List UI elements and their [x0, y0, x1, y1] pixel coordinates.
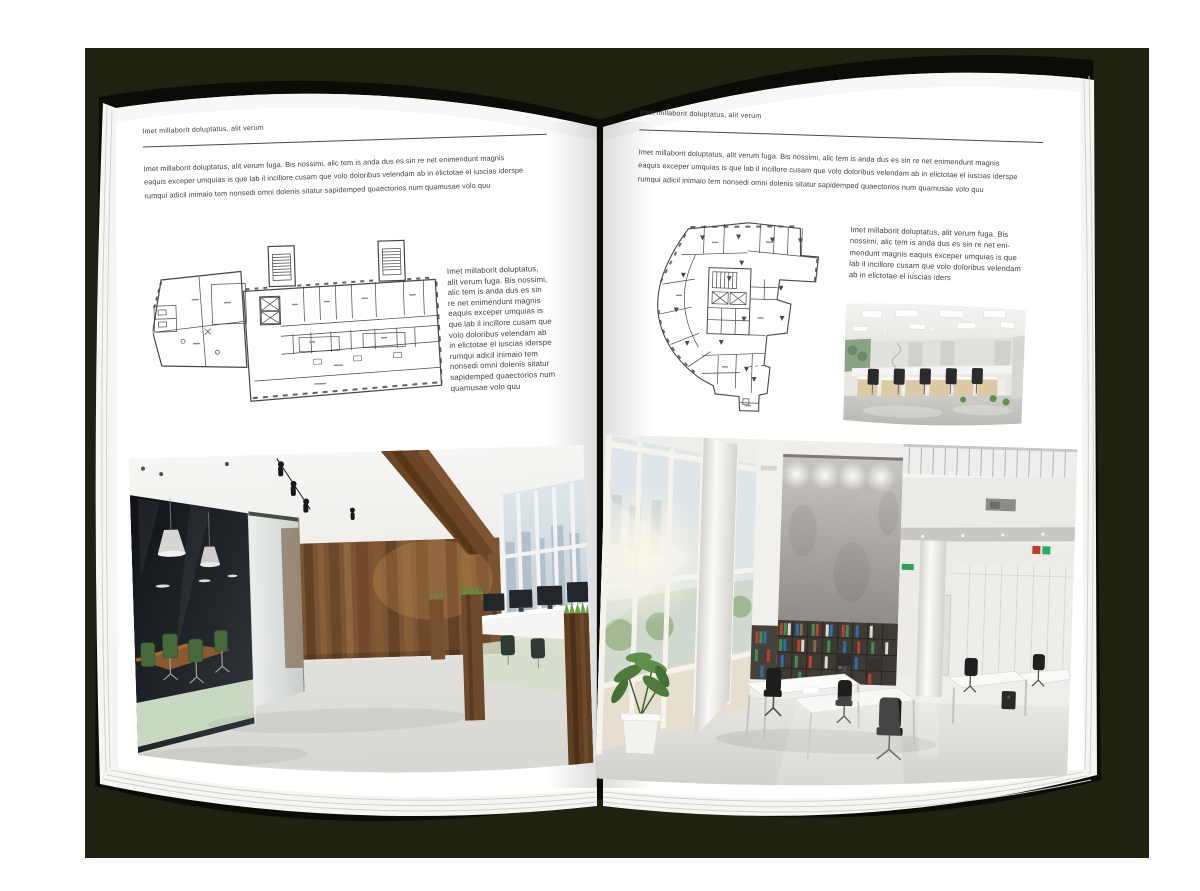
photo-office-wood-interior: [129, 445, 594, 785]
floor-plan-left: [150, 225, 444, 414]
intro-paragraph: Imet millaborit doluptatus, alit verum f…: [143, 151, 523, 203]
page-right: Imet millaborit doluptatus, alit verum I…: [601, 61, 1094, 801]
page-header: Imet millaborit doluptatus, alit verum: [142, 125, 264, 136]
page-header: Imet millaborit doluptatus, alit verum: [640, 109, 762, 120]
photo-open-office-small: [842, 302, 1026, 430]
side-column: Imet millaborit doluptatus,alit verum fu…: [447, 264, 556, 394]
magazine-mockup: Imet millaborit doluptatus, alit verum I…: [0, 0, 1200, 891]
header-rule: [143, 134, 547, 148]
floor-plan-right: [647, 214, 835, 416]
page-left: Imet millaborit doluptatus, alit verum I…: [107, 73, 601, 793]
side-column: Imet millaborit doluptatus, alit verum f…: [849, 224, 1022, 286]
intro-paragraph: Imet millaborit doluptatus, alit verum f…: [638, 145, 1018, 197]
photo-atrium-office: [595, 434, 1078, 797]
header-rule: [639, 129, 1043, 143]
